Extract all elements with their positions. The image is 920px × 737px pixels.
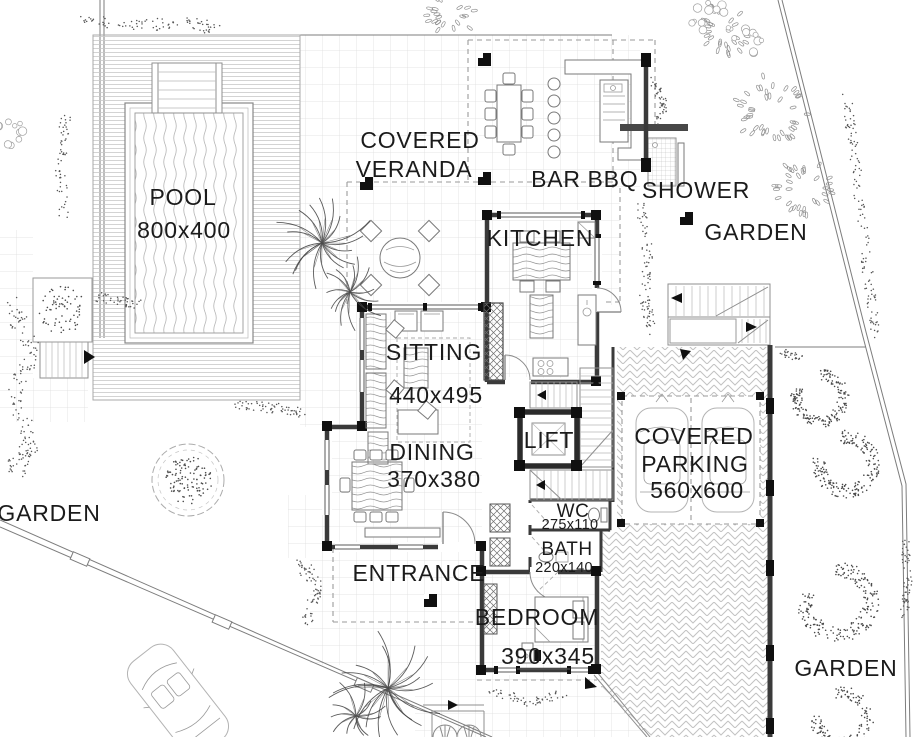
rock-cluster-ne-2 xyxy=(732,25,764,57)
entrance-label: ENTRANCE xyxy=(353,560,486,586)
parking-label-line2: PARKING xyxy=(641,451,748,477)
planter-box-west xyxy=(33,278,92,342)
stipple-trail-deck-south xyxy=(234,401,305,418)
pool-dimensions: 800x400 xyxy=(137,217,231,243)
bush-ring-e1 xyxy=(790,369,849,427)
sitting-label: SITTING xyxy=(386,339,482,365)
garden-northeast-label: GARDEN xyxy=(704,219,807,245)
garden-west-label: GARDEN xyxy=(0,500,101,526)
parking-dimensions: 560x600 xyxy=(650,477,744,503)
kitchen-label: KITCHEN xyxy=(487,225,594,251)
sitting-dimensions: 440x495 xyxy=(389,382,483,408)
parking-label-line1: COVERED xyxy=(634,423,753,449)
bedroom-dimensions: 390x345 xyxy=(501,643,595,669)
dining-dimensions: 370x380 xyxy=(387,466,481,492)
pool-steps xyxy=(152,63,222,113)
bush-ring-e4 xyxy=(811,686,874,737)
bath-label: BATH xyxy=(541,539,592,560)
deck-stairs-west xyxy=(40,340,95,378)
hall-storage xyxy=(490,504,510,566)
rock-cluster-ne xyxy=(689,0,733,34)
bath-dimensions: 220x140 xyxy=(535,560,593,576)
stipple-trail-garden-e xyxy=(637,203,655,335)
rock-cluster-w xyxy=(0,119,27,149)
garden-southeast-label: GARDEN xyxy=(794,655,897,681)
stipple-trail-se-edge xyxy=(900,540,912,618)
stipple-trail-top xyxy=(80,16,220,34)
floor-plan-canvas: COVERED VERANDA POOL 800x400 BAR BBQ SHO… xyxy=(0,0,920,737)
dining-label: DINING xyxy=(389,439,474,465)
shower-label: SHOWER xyxy=(642,177,750,203)
stipple-trail-parking-n xyxy=(780,349,803,360)
leafy-tree-top xyxy=(424,0,478,33)
stipple-trail-west-mid xyxy=(55,115,71,218)
floor-plan-drawing: COVERED VERANDA POOL 800x400 BAR BBQ SHO… xyxy=(0,0,920,737)
bush-ring-e3 xyxy=(798,563,879,642)
stipple-trail-boundary-ne xyxy=(842,94,879,339)
veranda-label-line1: COVERED xyxy=(360,127,479,153)
fireplace-column xyxy=(484,303,503,380)
bush-ring-e2 xyxy=(812,430,879,499)
bbq-label: BBQ xyxy=(588,166,639,192)
bbq-counter xyxy=(600,80,628,142)
veranda-label-line2: VERANDA xyxy=(356,156,473,182)
stipple-trail-bbq xyxy=(650,77,667,125)
car-southwest xyxy=(117,635,239,737)
wc-dimensions: 275x110 xyxy=(542,517,599,533)
lift-label: LIFT xyxy=(524,427,574,453)
bedroom-label: BEDROOM xyxy=(475,604,599,630)
bar-label: BAR xyxy=(531,166,581,192)
pool-label: POOL xyxy=(149,184,216,210)
